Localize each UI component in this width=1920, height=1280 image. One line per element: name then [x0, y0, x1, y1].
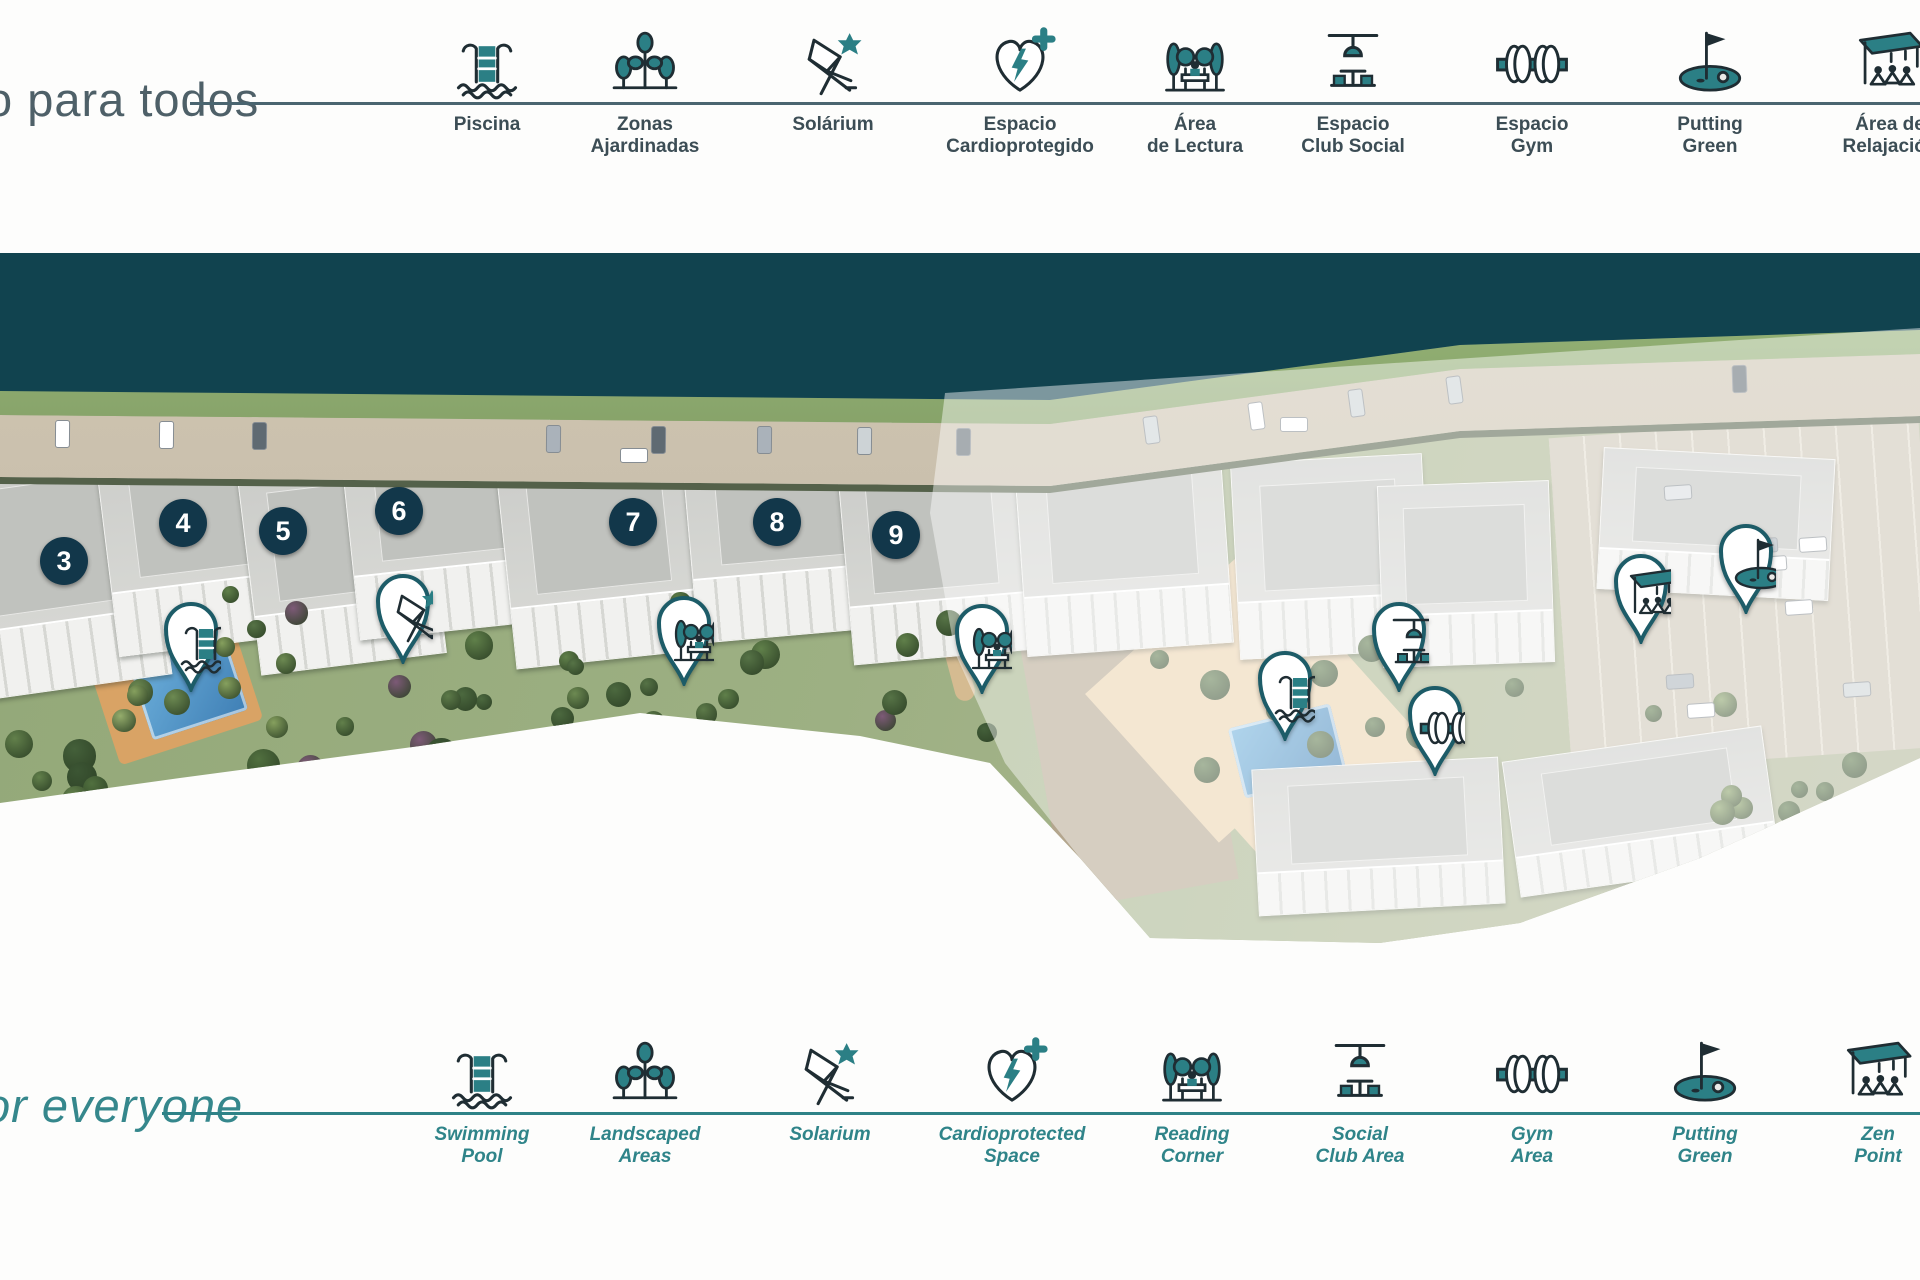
tree [564, 726, 588, 750]
legend-item-trees: Zonas Ajardinadas [565, 26, 725, 159]
site-plan-map [0, 253, 1920, 1045]
trees-icon [601, 26, 689, 102]
tree [567, 658, 584, 675]
legend-item-zen: Zen Point [1798, 1036, 1920, 1169]
tree [32, 771, 52, 791]
headline-english: or everyone [0, 1078, 243, 1133]
tree [112, 709, 136, 733]
tree [696, 703, 717, 724]
tree [718, 689, 739, 710]
tree [83, 776, 108, 801]
solarium-icon [786, 1036, 874, 1112]
solarium-icon [789, 26, 877, 102]
social-icon [1316, 1036, 1404, 1112]
legend-item-label: Espacio Cardioprotegido [946, 114, 1094, 159]
parked-car [651, 426, 666, 454]
tree [410, 731, 437, 758]
legend-item-label: Espacio Gym [1496, 114, 1569, 159]
legend-item-social: Social Club Area [1280, 1036, 1440, 1169]
tree [640, 678, 658, 696]
tree [682, 720, 707, 745]
tree [413, 591, 429, 607]
tree [218, 677, 240, 699]
tree [896, 633, 920, 657]
legend-item-label: Piscina [454, 114, 521, 136]
legend-item-label: Gym Area [1511, 1124, 1553, 1169]
legend-item-gym: Espacio Gym [1452, 26, 1612, 159]
parked-car [857, 427, 872, 455]
tree [222, 586, 239, 603]
tree [178, 648, 193, 663]
tree [247, 749, 280, 782]
tree [567, 687, 588, 708]
legend-item-zen: Área de Relajación [1810, 26, 1920, 159]
putting-icon [1666, 26, 1754, 102]
tree [5, 730, 33, 758]
tree [349, 771, 377, 799]
legend-item-trees: Landscaped Areas [565, 1036, 725, 1169]
parked-car [55, 420, 70, 448]
parked-car [158, 421, 173, 449]
legend-item-label: Área de Relajación [1842, 114, 1920, 159]
tree [247, 620, 266, 639]
tree [662, 791, 681, 810]
legend-item-gym: Gym Area [1452, 1036, 1612, 1169]
tree [670, 592, 690, 612]
legend-item-label: Zonas Ajardinadas [591, 114, 700, 159]
legend-item-solarium: Solarium [750, 1036, 910, 1146]
legend-item-label: Reading Corner [1155, 1124, 1230, 1169]
legend-item-label: Social Club Area [1315, 1124, 1404, 1169]
tree [551, 707, 574, 730]
tree [549, 722, 581, 754]
legend-item-label: Espacio Club Social [1301, 114, 1404, 159]
tree [449, 777, 471, 799]
reading-icon [1151, 26, 1239, 102]
legend-item-label: Putting Green [1672, 1124, 1737, 1169]
tree [802, 782, 834, 814]
trees-icon [601, 1036, 689, 1112]
parked-car [252, 422, 267, 450]
cardio-icon [976, 26, 1064, 102]
tree [336, 717, 355, 736]
tree [297, 778, 321, 802]
tree [266, 716, 288, 738]
tree [834, 760, 854, 780]
tree [276, 653, 297, 674]
legend-item-solarium: Solárium [753, 26, 913, 136]
tree [606, 682, 631, 707]
masterplan-page: o para todos Piscina Zonas Ajardinadas S… [0, 0, 1920, 1280]
legend-item-reading: Reading Corner [1112, 1036, 1272, 1169]
tree [521, 786, 550, 815]
legend-item-putting: Putting Green [1625, 1036, 1785, 1169]
tree [517, 746, 544, 773]
parked-car [546, 425, 561, 453]
legend-item-social: Espacio Club Social [1273, 26, 1433, 159]
zen-icon [1846, 26, 1920, 102]
legend-item-label: Cardioprotected Space [939, 1124, 1086, 1169]
tree [285, 601, 309, 625]
legend-item-putting: Putting Green [1630, 26, 1790, 159]
tree [164, 689, 191, 716]
zen-icon [1834, 1036, 1920, 1112]
legend-item-label: Landscaped Areas [590, 1124, 701, 1169]
social-icon [1309, 26, 1397, 102]
pool-icon [438, 1036, 526, 1112]
gym-icon [1488, 1036, 1576, 1112]
legend-item-reading: Área de Lectura [1115, 26, 1275, 159]
tree [198, 638, 212, 652]
gym-icon [1488, 26, 1576, 102]
tree [882, 690, 907, 715]
putting-icon [1661, 1036, 1749, 1112]
tree [668, 725, 696, 753]
tree [175, 782, 200, 807]
driving-car [620, 448, 648, 463]
legend-item-label: Solárium [792, 114, 873, 136]
parked-car [757, 426, 772, 454]
legend-item-cardio: Cardioprotected Space [932, 1036, 1092, 1169]
legend-item-label: Solarium [789, 1124, 870, 1146]
tree [388, 675, 411, 698]
legend-item-cardio: Espacio Cardioprotegido [940, 26, 1100, 159]
headline-spanish: o para todos [0, 72, 259, 127]
pool-icon [443, 26, 531, 102]
legend-item-label: Swimming Pool [434, 1124, 529, 1169]
tree [62, 786, 90, 814]
tree [465, 631, 494, 660]
legend-item-label: Área de Lectura [1147, 114, 1243, 159]
tree [127, 685, 148, 706]
tree [426, 738, 456, 768]
legend-item-label: Zen Point [1854, 1124, 1902, 1169]
tree [215, 637, 235, 657]
reading-icon [1148, 1036, 1236, 1112]
tree [740, 650, 765, 675]
legend-item-pool: Piscina [407, 26, 567, 136]
legend-item-pool: Swimming Pool [402, 1036, 562, 1169]
tree [297, 755, 325, 783]
legend-item-label: Putting Green [1677, 114, 1742, 159]
cardio-icon [968, 1036, 1056, 1112]
tree [290, 783, 312, 805]
tree [642, 711, 666, 735]
tree [476, 694, 492, 710]
